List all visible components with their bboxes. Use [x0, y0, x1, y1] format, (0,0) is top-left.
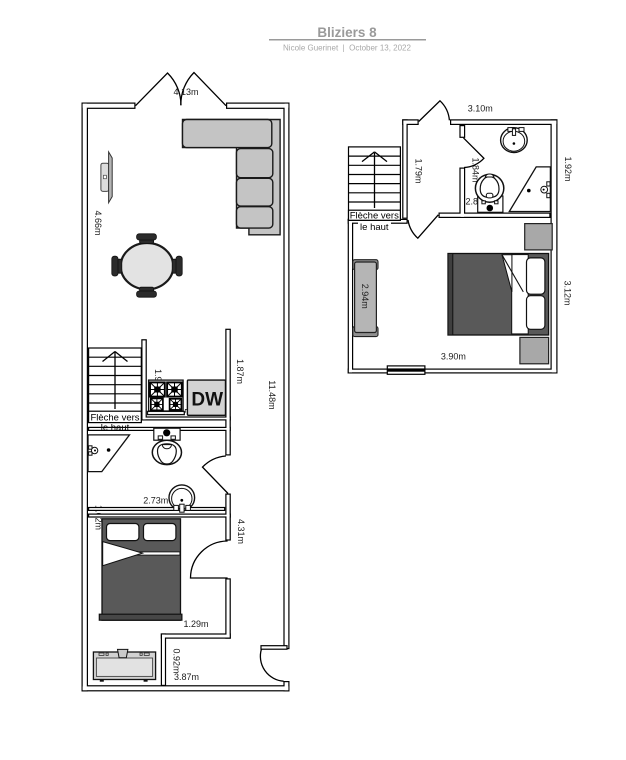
- svg-text:2.73m: 2.73m: [143, 495, 168, 505]
- svg-text:1.92m: 1.92m: [563, 156, 573, 181]
- svg-text:le haut: le haut: [360, 222, 389, 233]
- svg-text:Nicole Guerinet | October 13: Nicole Guerinet | October 13, 2022: [283, 44, 411, 53]
- svg-text:4.13m: 4.13m: [173, 87, 198, 97]
- svg-text:3.90m: 3.90m: [441, 351, 466, 361]
- svg-text:DW: DW: [191, 389, 223, 410]
- svg-text:1.87m: 1.87m: [235, 359, 245, 384]
- svg-text:le haut: le haut: [101, 423, 130, 434]
- svg-text:0.92m: 0.92m: [171, 648, 181, 673]
- svg-text:4.66m: 4.66m: [93, 210, 103, 235]
- svg-text:4.31m: 4.31m: [236, 519, 246, 544]
- svg-text:Flèche vers: Flèche vers: [350, 211, 399, 222]
- svg-text:Bliziers 8: Bliziers 8: [317, 25, 377, 40]
- svg-text:3.10m: 3.10m: [468, 104, 493, 114]
- svg-text:1.29m: 1.29m: [183, 619, 208, 629]
- svg-text:1.79m: 1.79m: [413, 158, 423, 183]
- svg-text:3.12m: 3.12m: [562, 280, 572, 305]
- svg-text:2.94m: 2.94m: [360, 284, 370, 309]
- svg-text:3.87m: 3.87m: [174, 672, 199, 682]
- svg-text:11.48m: 11.48m: [267, 380, 277, 409]
